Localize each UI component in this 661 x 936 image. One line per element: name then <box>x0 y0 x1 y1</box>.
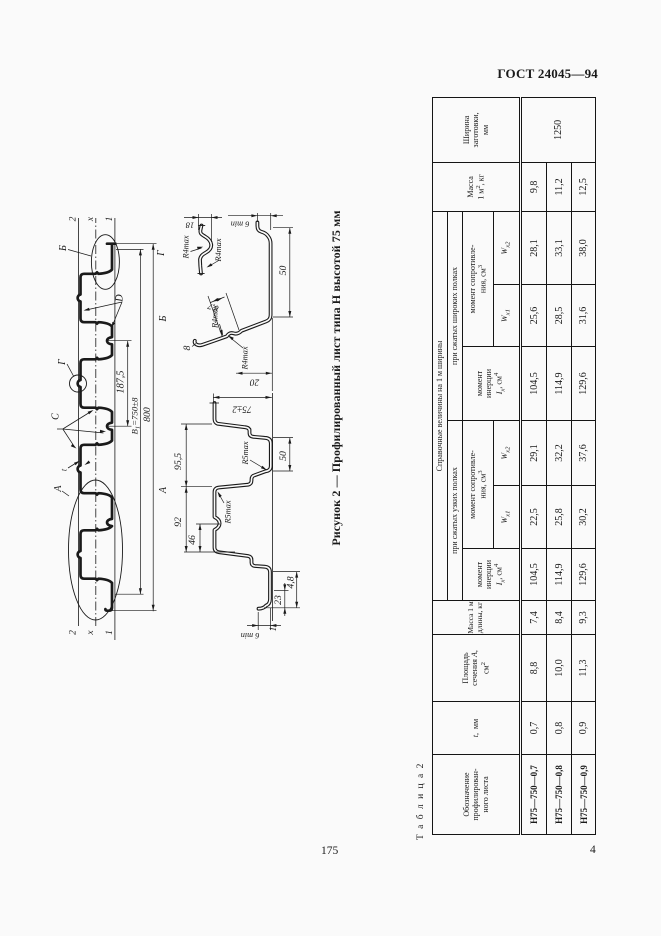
svg-text:Г: Г <box>156 250 167 257</box>
svg-text:В1=750±8: В1=750±8 <box>130 397 142 435</box>
svg-text:2: 2 <box>69 216 79 221</box>
svg-text:А: А <box>158 486 169 494</box>
svg-text:Г: Г <box>57 359 68 366</box>
svg-text:R5max: R5max <box>241 441 250 465</box>
svg-text:46: 46 <box>187 535 198 545</box>
svg-text:х: х <box>86 630 96 636</box>
svg-text:92: 92 <box>173 517 184 527</box>
svg-text:R4max: R4max <box>181 235 190 259</box>
svg-text:х: х <box>86 216 96 222</box>
svg-text:D: D <box>115 294 126 303</box>
svg-text:R4max: R4max <box>214 238 223 262</box>
svg-text:6 min: 6 min <box>241 631 260 640</box>
svg-text:50: 50 <box>278 266 289 276</box>
svg-text:Б: Б <box>158 315 169 322</box>
svg-text:1: 1 <box>268 627 279 632</box>
svg-text:50: 50 <box>278 451 289 461</box>
svg-text:4,8: 4,8 <box>285 576 296 588</box>
svg-text:187,5: 187,5 <box>115 371 126 394</box>
svg-text:6 min: 6 min <box>231 220 250 229</box>
svg-text:2: 2 <box>69 630 79 635</box>
svg-text:18: 18 <box>185 221 194 231</box>
svg-text:R4max: R4max <box>211 305 220 329</box>
svg-text:R4max: R4max <box>241 346 250 370</box>
svg-text:23: 23 <box>273 595 284 605</box>
svg-text:R5max: R5max <box>224 500 233 524</box>
svg-text:95,5: 95,5 <box>173 453 184 470</box>
svg-text:Б: Б <box>58 245 69 252</box>
svg-text:75±2: 75±2 <box>232 404 252 414</box>
svg-text:8: 8 <box>182 345 193 350</box>
svg-text:С: С <box>51 413 62 420</box>
svg-text:20: 20 <box>250 377 260 387</box>
svg-text:t: t <box>60 468 69 471</box>
svg-text:800: 800 <box>142 407 153 422</box>
svg-text:1: 1 <box>105 630 115 635</box>
svg-text:1: 1 <box>105 217 115 222</box>
